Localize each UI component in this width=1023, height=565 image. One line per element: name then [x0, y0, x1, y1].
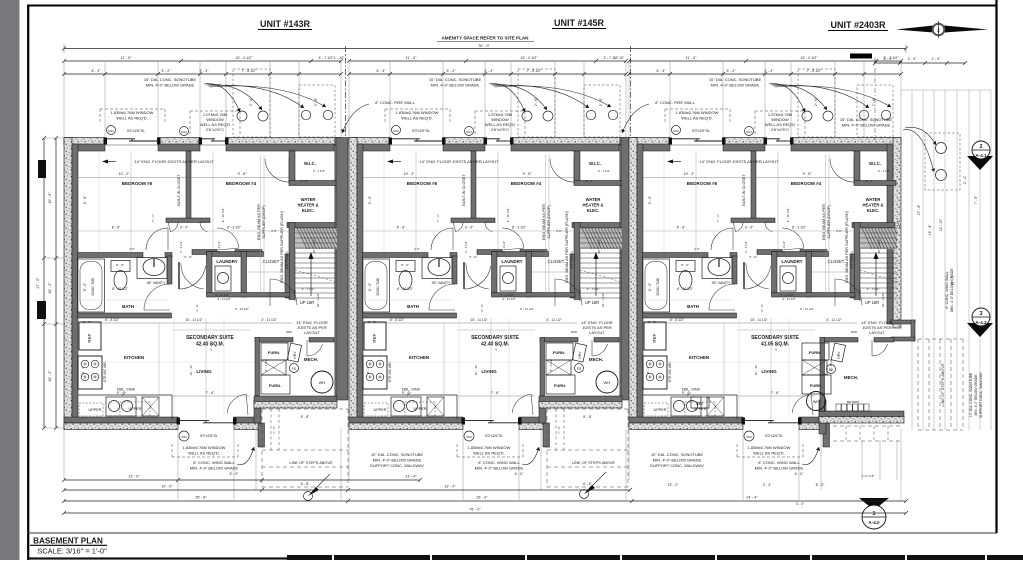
- svg-text:A-4.0: A-4.0: [868, 520, 880, 525]
- svg-text:4' - 6 1/2": 4' - 6 1/2": [858, 289, 862, 301]
- svg-text:BATH: BATH: [687, 304, 699, 309]
- svg-text:8' - 6": 8' - 6": [681, 263, 689, 267]
- svg-text:W11: W11: [746, 130, 752, 134]
- svg-text:3' - 4 1/2": 3' - 4 1/2": [744, 241, 748, 253]
- svg-text:10' - 11": 10' - 11": [474, 364, 478, 375]
- svg-text:BEDROOM #5: BEDROOM #5: [687, 181, 718, 186]
- svg-text:16' - 3": 16' - 3": [48, 282, 52, 294]
- svg-text:10' - 0 1/2": 10' - 0 1/2": [520, 56, 538, 60]
- svg-text:2' - 4": 2' - 4": [765, 69, 775, 73]
- svg-text:3' - 4 1/2": 3' - 4 1/2": [464, 241, 468, 253]
- svg-text:8" CONC. FIRE WALL: 8" CONC. FIRE WALL: [375, 100, 415, 105]
- svg-text:UPPER: UPPER: [373, 408, 386, 412]
- svg-text:ENG. BEAM AS PER: ENG. BEAM AS PER: [542, 204, 546, 240]
- svg-text:W.I.C.: W.I.C.: [869, 161, 881, 166]
- svg-text:25' - 8": 25' - 8": [195, 496, 207, 500]
- svg-text:SUPPLIER (DROP): SUPPLIER (DROP): [827, 205, 831, 239]
- svg-text:10" DIA. CONC. SONOTUBE: 10" DIA. CONC. SONOTUBE: [651, 452, 704, 457]
- svg-text:7' - 8 1/2": 7' - 8 1/2": [242, 69, 258, 73]
- svg-text:3' - 7 1/2": 3' - 7 1/2": [318, 56, 334, 60]
- svg-text:OTR MIC ABV: OTR MIC ABV: [388, 361, 392, 382]
- svg-text:3' - 0": 3' - 0": [465, 226, 474, 230]
- svg-text:HEATER &: HEATER &: [297, 203, 318, 208]
- svg-text:11' - 5": 11' - 5": [686, 56, 698, 60]
- svg-text:W11: W11: [466, 130, 472, 134]
- svg-text:4' - 11 1/2": 4' - 11 1/2": [217, 297, 231, 301]
- svg-text:6' - 8 1/2": 6' - 8 1/2": [105, 318, 120, 322]
- svg-text:1' - 0": 1' - 0": [932, 57, 941, 61]
- svg-text:UNIT #145R: UNIT #145R: [554, 18, 605, 28]
- svg-text:17' - 4": 17' - 4": [917, 204, 921, 215]
- svg-text:2' - 4": 2' - 4": [485, 69, 495, 73]
- svg-text:2'6" French: 2'6" French: [285, 251, 289, 268]
- svg-text:LAYOUT: LAYOUT: [589, 330, 605, 335]
- svg-text:MIN. 4'-0" BELOW GRADE: MIN. 4'-0" BELOW GRADE: [146, 83, 195, 88]
- svg-text:6' - 3": 6' - 3": [92, 69, 102, 73]
- svg-text:76' - 0": 76' - 0": [469, 508, 481, 512]
- svg-text:13' - 0": 13' - 0": [128, 475, 140, 479]
- svg-text:5' - 2": 5' - 2": [727, 69, 737, 73]
- svg-text:3' - 3": 3' - 3": [774, 343, 778, 351]
- svg-text:2' 6": 2' 6": [129, 247, 135, 251]
- svg-text:10' - 11 1/2": 10' - 11 1/2": [750, 318, 768, 322]
- svg-text:FURN.: FURN.: [269, 383, 281, 388]
- svg-text:3' - 7 1/2": 3' - 7 1/2": [587, 287, 600, 291]
- svg-text:8' - 0": 8' - 0": [368, 283, 372, 291]
- svg-text:10' - 0 1/2": 10' - 0 1/2": [800, 56, 818, 60]
- svg-text:8' - 3 1/2": 8' - 3 1/2": [227, 226, 242, 230]
- svg-text:19' - 4": 19' - 4": [928, 224, 932, 235]
- svg-text:10' - 1 1/2": 10' - 1 1/2": [316, 293, 320, 307]
- svg-text:3' - 4 1/2": 3' - 4 1/2": [782, 241, 786, 253]
- svg-text:5'0"x2'6"SL: 5'0"x2'6"SL: [485, 434, 503, 438]
- svg-text:W10: W10: [181, 435, 187, 439]
- svg-text:7' - 8": 7' - 8": [974, 196, 978, 204]
- svg-text:10" DIA. CONC. SONOTUBE: 10" DIA. CONC. SONOTUBE: [144, 77, 197, 82]
- svg-text:8' - 6": 8' - 6": [116, 263, 124, 267]
- svg-text:UPPER: UPPER: [653, 408, 666, 412]
- svg-text:14" ENG. FLOOR JOISTS AS PER L: 14" ENG. FLOOR JOISTS AS PER LAYOUT: [134, 159, 214, 164]
- svg-text:8' - 6": 8' - 6": [112, 226, 121, 230]
- svg-text:FURN.: FURN.: [809, 350, 821, 355]
- svg-text:AMENITY SPACE REFER TO SITE PL: AMENITY SPACE REFER TO SITE PLAN: [441, 36, 529, 41]
- svg-text:ENG. BEAM AS PER SUPPLIER (FLU: ENG. BEAM AS PER SUPPLIER (FLUSH): [565, 210, 569, 282]
- svg-text:LIVING: LIVING: [761, 369, 777, 374]
- svg-text:6' - 3": 6' - 3": [377, 69, 387, 73]
- svg-text:8" CONC. WING WALL: 8" CONC. WING WALL: [945, 271, 949, 308]
- svg-text:1'-4" 1'-8": 1'-4" 1'-8": [862, 474, 875, 478]
- svg-text:FURN.: FURN.: [554, 383, 566, 388]
- svg-text:MECH.: MECH.: [589, 357, 603, 362]
- svg-text:8' - 10 1/2": 8' - 10 1/2": [397, 287, 414, 291]
- svg-text:METERS: METERS: [847, 400, 860, 404]
- svg-text:SECONDARY SUITE: SECONDARY SUITE: [471, 335, 519, 341]
- svg-text:LINE OF STEPS ABOVE: LINE OF STEPS ABOVE: [289, 460, 333, 465]
- svg-text:3' - 0": 3' - 0": [796, 502, 804, 506]
- svg-text:LIVING: LIVING: [196, 369, 212, 374]
- svg-text:2' - 4": 2' - 4": [963, 176, 967, 184]
- svg-text:6' - 8": 6' - 8": [583, 482, 592, 486]
- svg-text:W12: W12: [673, 129, 679, 133]
- svg-text:ENG. BEAM AS PER: ENG. BEAM AS PER: [257, 204, 261, 240]
- svg-text:8' - 0": 8' - 0": [83, 283, 87, 291]
- svg-text:11' - 5": 11' - 5": [406, 56, 418, 60]
- svg-text:8' - 8": 8' - 8": [301, 415, 310, 419]
- svg-text:19' - 0": 19' - 0": [444, 485, 456, 489]
- svg-text:2'6"x2'6"C: 2'6"x2'6"C: [771, 127, 789, 132]
- svg-text:3' - 11 1/2": 3' - 11 1/2": [800, 307, 814, 311]
- svg-text:ENG. BEAM AS PER: ENG. BEAM AS PER: [822, 204, 826, 240]
- svg-text:2' 6": 2' 6": [836, 229, 842, 233]
- svg-text:2' - 6": 2' - 6": [599, 98, 603, 106]
- svg-text:4' - 0": 4' - 0": [865, 179, 873, 183]
- svg-text:LAUNDRY: LAUNDRY: [501, 259, 522, 264]
- svg-text:4' - 11 1/2": 4' - 11 1/2": [546, 318, 562, 322]
- svg-text:WATER: WATER: [301, 197, 316, 202]
- svg-text:8" CONC. WING WALL: 8" CONC. WING WALL: [758, 460, 800, 465]
- svg-text:WH: WH: [604, 380, 611, 385]
- svg-text:W.I.C.: W.I.C.: [589, 161, 601, 166]
- svg-text:SCALE: 3/16" = 1'-0": SCALE: 3/16" = 1'-0": [37, 547, 107, 556]
- svg-text:MECH.: MECH.: [304, 357, 318, 362]
- svg-text:KITCHEN: KITCHEN: [409, 355, 430, 360]
- svg-text:9' - 10 1/2": 9' - 10 1/2": [506, 208, 510, 223]
- svg-text:SUPPORT CONC. WALKWAY: SUPPORT CONC. WALKWAY: [370, 463, 424, 468]
- svg-text:7' - 6": 7' - 6": [491, 391, 500, 395]
- svg-text:12' - 10": 12' - 10": [939, 218, 943, 231]
- svg-text:9' - 6": 9' - 6": [368, 195, 372, 204]
- svg-text:13' - 4": 13' - 4": [405, 475, 417, 479]
- svg-text:3' - 11 1/2": 3' - 11 1/2": [520, 307, 534, 311]
- svg-text:8' - 3 1/2": 8' - 3 1/2": [792, 226, 807, 230]
- svg-text:LINE OF STEPS ABOVE: LINE OF STEPS ABOVE: [940, 363, 945, 407]
- svg-text:UPPER: UPPER: [693, 407, 706, 411]
- svg-text:3' - 0": 3' - 0": [749, 255, 757, 259]
- svg-text:3' - 0": 3' - 0": [745, 226, 754, 230]
- svg-text:CLOSET: CLOSET: [263, 259, 280, 264]
- svg-text:BUILT-IN CLOSET: BUILT-IN CLOSET: [742, 174, 746, 206]
- svg-text:7' - 6": 7' - 6": [771, 391, 780, 395]
- svg-text:UPPER: UPPER: [88, 408, 101, 412]
- svg-text:5' - 2": 5' - 2": [447, 69, 457, 73]
- svg-text:LAUNDRY: LAUNDRY: [216, 259, 237, 264]
- svg-text:3' - 0": 3' - 0": [469, 255, 477, 259]
- svg-text:27' - 0": 27' - 0": [36, 277, 40, 289]
- svg-text:1: 1: [872, 511, 875, 517]
- svg-text:2' 6": 2' 6": [694, 247, 700, 251]
- svg-text:1' - 10": 1' - 10": [334, 56, 345, 60]
- svg-text:2' 6": 2' 6": [556, 229, 562, 233]
- svg-text:2' - 6": 2' - 6": [814, 98, 818, 106]
- svg-text:2' - 3": 2' - 3": [368, 320, 376, 324]
- svg-text:9' - 10 1/2": 9' - 10 1/2": [221, 208, 225, 223]
- svg-text:4' - 11 1/2": 4' - 11 1/2": [782, 297, 796, 301]
- svg-text:1.83Mx0.76M WINDOW: 1.83Mx0.76M WINDOW: [111, 110, 154, 115]
- svg-text:CLOSET: CLOSET: [548, 259, 565, 264]
- svg-text:3' - 4 1/2": 3' - 4 1/2": [502, 241, 506, 253]
- svg-text:10' - 1 1/2": 10' - 1 1/2": [312, 239, 316, 253]
- svg-text:7' - 6": 7' - 6": [557, 426, 561, 434]
- svg-text:W10: W10: [746, 435, 752, 439]
- svg-text:KITCHEN: KITCHEN: [124, 355, 145, 360]
- svg-text:9' - 3": 9' - 3": [81, 366, 85, 374]
- svg-text:MIN. 4'-0" BELOW GRADE: MIN. 4'-0" BELOW GRADE: [653, 458, 702, 463]
- svg-text:10' - 2": 10' - 2": [404, 172, 415, 176]
- svg-text:8' - 6": 8' - 6": [397, 226, 406, 230]
- svg-text:W12: W12: [393, 129, 399, 133]
- svg-text:9' - 6": 9' - 6": [83, 195, 87, 204]
- svg-text:OTR MIC ABV: OTR MIC ABV: [668, 361, 672, 382]
- svg-text:8' - 10 1/2": 8' - 10 1/2": [112, 287, 129, 291]
- svg-text:BATH: BATH: [407, 304, 419, 309]
- svg-text:HRV: HRV: [837, 351, 841, 359]
- svg-text:W.I.C.: W.I.C.: [304, 161, 316, 166]
- svg-text:9' - 8": 9' - 8": [523, 172, 532, 176]
- svg-text:9' - 10 1/2": 9' - 10 1/2": [786, 208, 790, 223]
- svg-text:10' - 1 1/2": 10' - 1 1/2": [877, 239, 881, 253]
- svg-text:FURN.: FURN.: [810, 383, 822, 388]
- svg-text:DV: DV: [697, 401, 703, 406]
- svg-text:5' - 4 1/2": 5' - 4 1/2": [264, 359, 268, 372]
- svg-text:2' - 6": 2' - 6": [872, 98, 876, 106]
- svg-text:5'0"x2'6"SL: 5'0"x2'6"SL: [692, 129, 710, 133]
- svg-text:UP 16R: UP 16R: [865, 300, 880, 305]
- svg-text:4' - 6 1/2": 4' - 6 1/2": [293, 289, 297, 301]
- svg-text:2'6" French: 2'6" French: [570, 251, 574, 268]
- svg-text:3' - 9": 3' - 9": [480, 304, 484, 312]
- svg-text:6' - 0": 6' - 0": [795, 472, 804, 476]
- svg-text:FD: FD: [577, 367, 582, 371]
- svg-text:MIN. 4'-0" BELOW GRADE: MIN. 4'-0" BELOW GRADE: [842, 123, 891, 128]
- svg-text:HRV: HRV: [578, 351, 582, 359]
- svg-text:W12: W12: [108, 129, 114, 133]
- svg-text:WELL AS REQ'D.: WELL AS REQ'D.: [681, 116, 713, 121]
- svg-text:FD: FD: [292, 367, 297, 371]
- svg-text:6' - 8 1/2": 6' - 8 1/2": [390, 318, 405, 322]
- svg-text:4' - 6 1/2": 4' - 6 1/2": [578, 289, 582, 301]
- svg-text:WH: WH: [813, 400, 820, 404]
- svg-text:WH: WH: [319, 380, 326, 385]
- svg-text:BASEMENT PLAN: BASEMENT PLAN: [33, 537, 103, 546]
- svg-text:MIN. 4'-0" BELOW GRADE: MIN. 4'-0" BELOW GRADE: [431, 83, 480, 88]
- svg-text:KITCHEN: KITCHEN: [689, 355, 710, 360]
- svg-text:REF: REF: [372, 333, 377, 342]
- svg-text:6' - 0": 6' - 0": [230, 472, 239, 476]
- svg-text:BEDROOM #5: BEDROOM #5: [122, 181, 153, 186]
- svg-text:BEDROOM #5: BEDROOM #5: [407, 181, 438, 186]
- svg-text:2' 6": 2' 6": [414, 247, 420, 251]
- svg-text:W11: W11: [181, 130, 187, 134]
- svg-text:5'0"x2'6"SL: 5'0"x2'6"SL: [127, 129, 145, 133]
- svg-text:2' - 6": 2' - 6": [534, 98, 538, 106]
- svg-text:3' - 7 1/2": 3' - 7 1/2": [878, 169, 890, 173]
- svg-text:14" ENG. FLOOR JOISTS AS PER L: 14" ENG. FLOOR JOISTS AS PER LAYOUT: [699, 159, 779, 164]
- svg-text:WELL AS REQ'D.: WELL AS REQ'D.: [401, 116, 433, 121]
- svg-text:MIN. 4'-0" BELOW GRADE: MIN. 4'-0" BELOW GRADE: [475, 466, 524, 471]
- svg-text:3' - 0": 3' - 0": [908, 57, 917, 61]
- svg-text:REF: REF: [652, 333, 657, 342]
- svg-text:FURN.: FURN.: [553, 350, 565, 355]
- svg-text:9' - 4": 9' - 4": [682, 391, 690, 395]
- svg-text:7' - 8 1/2": 7' - 8 1/2": [807, 69, 823, 73]
- svg-text:UNIT #2403R: UNIT #2403R: [830, 20, 886, 30]
- svg-text:BEDROOM #4: BEDROOM #4: [791, 181, 822, 186]
- svg-text:36" VANITY: 36" VANITY: [432, 281, 452, 285]
- svg-text:BATH: BATH: [122, 304, 134, 309]
- svg-text:24' - 4": 24' - 4": [746, 496, 758, 500]
- svg-text:5'0"x2'6"SL: 5'0"x2'6"SL: [200, 434, 218, 438]
- svg-text:10' - 2": 10' - 2": [684, 172, 695, 176]
- svg-text:BUILT-IN CLOSET: BUILT-IN CLOSET: [462, 174, 466, 206]
- svg-text:19' - 0": 19' - 0": [161, 485, 173, 489]
- svg-text:6' - 0": 6' - 0": [515, 472, 524, 476]
- svg-text:7' - 6": 7' - 6": [206, 391, 215, 395]
- svg-text:FURN.: FURN.: [268, 350, 280, 355]
- svg-text:1.83Mx0.76M WINDOW: 1.83Mx0.76M WINDOW: [183, 445, 226, 450]
- svg-text:4' - 0": 4' - 0": [300, 179, 308, 183]
- svg-text:SUPPLIER (DROP): SUPPLIER (DROP): [547, 205, 551, 239]
- svg-text:10' - 11 1/2": 10' - 11 1/2": [185, 318, 203, 322]
- svg-text:BEDROOM #4: BEDROOM #4: [511, 181, 542, 186]
- svg-text:3' - 0": 3' - 0": [184, 255, 192, 259]
- svg-text:SECONDARY SUITE: SECONDARY SUITE: [186, 335, 234, 341]
- svg-text:A-4.2: A-4.2: [975, 320, 987, 325]
- svg-text:5'0"x2'6"SL: 5'0"x2'6"SL: [412, 129, 430, 133]
- svg-text:SUPPLIER (DROP): SUPPLIER (DROP): [262, 205, 266, 239]
- svg-text:9' - 4": 9' - 4": [117, 391, 125, 395]
- svg-text:WELL AS REQ'D.: WELL AS REQ'D.: [116, 116, 148, 121]
- svg-text:3' - 3": 3' - 3": [209, 343, 213, 351]
- svg-text:3' - 0": 3' - 0": [180, 226, 189, 230]
- svg-text:A-4.1: A-4.1: [975, 153, 987, 158]
- svg-text:3' - 4 1/2": 3' - 4 1/2": [217, 241, 221, 253]
- svg-text:3' - 9": 3' - 9": [195, 304, 199, 312]
- svg-text:LINE OF STEPS ABOVE: LINE OF STEPS ABOVE: [572, 460, 616, 465]
- svg-text:7' - 6": 7' - 6": [272, 426, 276, 434]
- svg-text:2'6" French: 2'6" French: [850, 251, 854, 268]
- svg-text:SUPPORT CONC. WALKWAY: SUPPORT CONC. WALKWAY: [650, 463, 704, 468]
- svg-text:7' - 1": 7' - 1": [716, 214, 720, 222]
- svg-text:BUILT-IN CLOSET: BUILT-IN CLOSET: [177, 174, 181, 206]
- svg-text:8' - 6": 8' - 6": [677, 226, 686, 230]
- svg-text:1' - 10": 1' - 10": [614, 56, 625, 60]
- svg-text:8" CONC. WING WALL: 8" CONC. WING WALL: [193, 460, 235, 465]
- svg-text:HEATER &: HEATER &: [862, 203, 883, 208]
- svg-text:10' - 2": 10' - 2": [119, 172, 130, 176]
- svg-text:10' - 1 1/2": 10' - 1 1/2": [597, 239, 601, 253]
- svg-text:3' - 7 1/2": 3' - 7 1/2": [867, 287, 880, 291]
- svg-text:16' - 3": 16' - 3": [48, 370, 52, 382]
- svg-text:9' - 3": 9' - 3": [366, 366, 370, 374]
- svg-text:8' - 8": 8' - 8": [583, 415, 592, 419]
- svg-text:UP 16R: UP 16R: [300, 300, 315, 305]
- svg-text:ELEC.: ELEC.: [587, 208, 599, 213]
- svg-text:10' - 11 1/2": 10' - 11 1/2": [470, 318, 488, 322]
- svg-text:8" CONC. WING WALL: 8" CONC. WING WALL: [478, 460, 520, 465]
- svg-text:36" VANITY: 36" VANITY: [712, 281, 732, 285]
- svg-text:3' - 7 1/2": 3' - 7 1/2": [302, 287, 315, 291]
- svg-text:9' - 4": 9' - 4": [402, 391, 410, 395]
- svg-text:4' - 11 1/2": 4' - 11 1/2": [261, 318, 277, 322]
- svg-text:10" DIA. CONC. SONOTUBE: 10" DIA. CONC. SONOTUBE: [429, 77, 482, 82]
- svg-text:9' - 8": 9' - 8": [238, 172, 247, 176]
- svg-text:3' - 9": 3' - 9": [760, 304, 764, 312]
- svg-text:MIN. 4'-0" BELOW GRADE: MIN. 4'-0" BELOW GRADE: [711, 83, 760, 88]
- svg-text:CLOSET: CLOSET: [828, 259, 845, 264]
- svg-text:WATER: WATER: [586, 197, 601, 202]
- svg-text:32X60 TUB: 32X60 TUB: [91, 278, 95, 296]
- svg-text:UPPER: UPPER: [128, 407, 141, 411]
- svg-text:BEDROOM #4: BEDROOM #4: [226, 181, 257, 186]
- svg-text:2' - 6": 2' - 6": [314, 98, 318, 106]
- svg-text:6' - 3": 6' - 3": [657, 69, 667, 73]
- svg-text:4' - 0": 4' - 0": [585, 179, 593, 183]
- svg-text:UP 16R: UP 16R: [585, 300, 600, 305]
- svg-text:2' 6": 2' 6": [271, 229, 277, 233]
- svg-text:3' - 4 1/2": 3' - 4 1/2": [179, 241, 183, 253]
- svg-text:10" DIA. CONC. SONOTUBE: 10" DIA. CONC. SONOTUBE: [969, 372, 973, 417]
- svg-text:LIVING: LIVING: [481, 369, 497, 374]
- svg-text:5'0"x2'6"SL: 5'0"x2'6"SL: [765, 434, 783, 438]
- svg-text:HRV: HRV: [293, 351, 297, 359]
- svg-text:10' - 9": 10' - 9": [48, 192, 52, 204]
- svg-text:8' - 10 1/2": 8' - 10 1/2": [677, 287, 694, 291]
- svg-text:10" DIA. CONC. SONOTUBE: 10" DIA. CONC. SONOTUBE: [371, 452, 424, 457]
- svg-text:32X60 TUB: 32X60 TUB: [656, 278, 660, 296]
- svg-text:LAUNDRY: LAUNDRY: [781, 259, 802, 264]
- svg-text:10' - 11": 10' - 11": [189, 364, 193, 375]
- svg-text:8' - 2": 8' - 2": [816, 483, 825, 487]
- svg-text:MIN. 4'-0" BELOW GRADE: MIN. 4'-0" BELOW GRADE: [190, 466, 239, 471]
- svg-text:2: 2: [979, 144, 982, 150]
- svg-text:2' - 4": 2' - 4": [200, 69, 210, 73]
- svg-text:1.83Mx0.76M WINDOW: 1.83Mx0.76M WINDOW: [468, 445, 511, 450]
- svg-text:10' - 1 1/2": 10' - 1 1/2": [601, 293, 605, 307]
- svg-text:10' - 0 1/2": 10' - 0 1/2": [235, 56, 253, 60]
- svg-text:7' - 1": 7' - 1": [436, 214, 440, 222]
- svg-text:7' - 8 1/2": 7' - 8 1/2": [527, 69, 543, 73]
- svg-text:32X60 TUB: 32X60 TUB: [376, 278, 380, 296]
- svg-text:4' - 11 1/2": 4' - 11 1/2": [826, 318, 842, 322]
- svg-text:ELEC.: ELEC.: [867, 208, 879, 213]
- svg-text:8' - 3 1/2": 8' - 3 1/2": [512, 226, 527, 230]
- svg-text:UPPER: UPPER: [413, 407, 426, 411]
- svg-text:MECH.: MECH.: [844, 375, 858, 380]
- svg-text:10' - 1 1/2": 10' - 1 1/2": [881, 293, 885, 307]
- svg-text:MIN. 4'-0" BELOW GRADE: MIN. 4'-0" BELOW GRADE: [950, 268, 954, 312]
- svg-text:5' - 2": 5' - 2": [162, 69, 172, 73]
- svg-text:REF: REF: [87, 333, 92, 342]
- svg-text:HEATER &: HEATER &: [582, 203, 603, 208]
- svg-text:3' - 4": 3' - 4": [763, 483, 772, 487]
- svg-text:14" ENG. FLOOR JOISTS AS PER L: 14" ENG. FLOOR JOISTS AS PER LAYOUT: [419, 159, 499, 164]
- svg-text:10" DIA. CONC. SONOTUBE: 10" DIA. CONC. SONOTUBE: [709, 77, 762, 82]
- svg-text:11' - 5": 11' - 5": [121, 56, 133, 60]
- svg-text:2'6"x2'6"C: 2'6"x2'6"C: [206, 127, 224, 132]
- svg-text:WELL AS REQ'D.: WELL AS REQ'D.: [188, 451, 220, 456]
- svg-text:9' - 3": 9' - 3": [646, 366, 650, 374]
- svg-text:6' - 8": 6' - 8": [301, 482, 310, 486]
- svg-text:LAYOUT: LAYOUT: [304, 330, 320, 335]
- svg-text:WATER: WATER: [866, 197, 881, 202]
- svg-text:5' - 4 1/2": 5' - 4 1/2": [829, 359, 833, 372]
- svg-text:2' - 3": 2' - 3": [83, 320, 91, 324]
- svg-text:W10: W10: [466, 435, 472, 439]
- svg-text:MIN. 4'-0" BELOW GRADE: MIN. 4'-0" BELOW GRADE: [755, 466, 804, 471]
- svg-text:3' - 7 1/2": 3' - 7 1/2": [598, 169, 610, 173]
- svg-text:MIN. 4'-0" BELOW GRADE: MIN. 4'-0" BELOW GRADE: [974, 374, 978, 416]
- svg-text:9' - 6": 9' - 6": [648, 195, 652, 204]
